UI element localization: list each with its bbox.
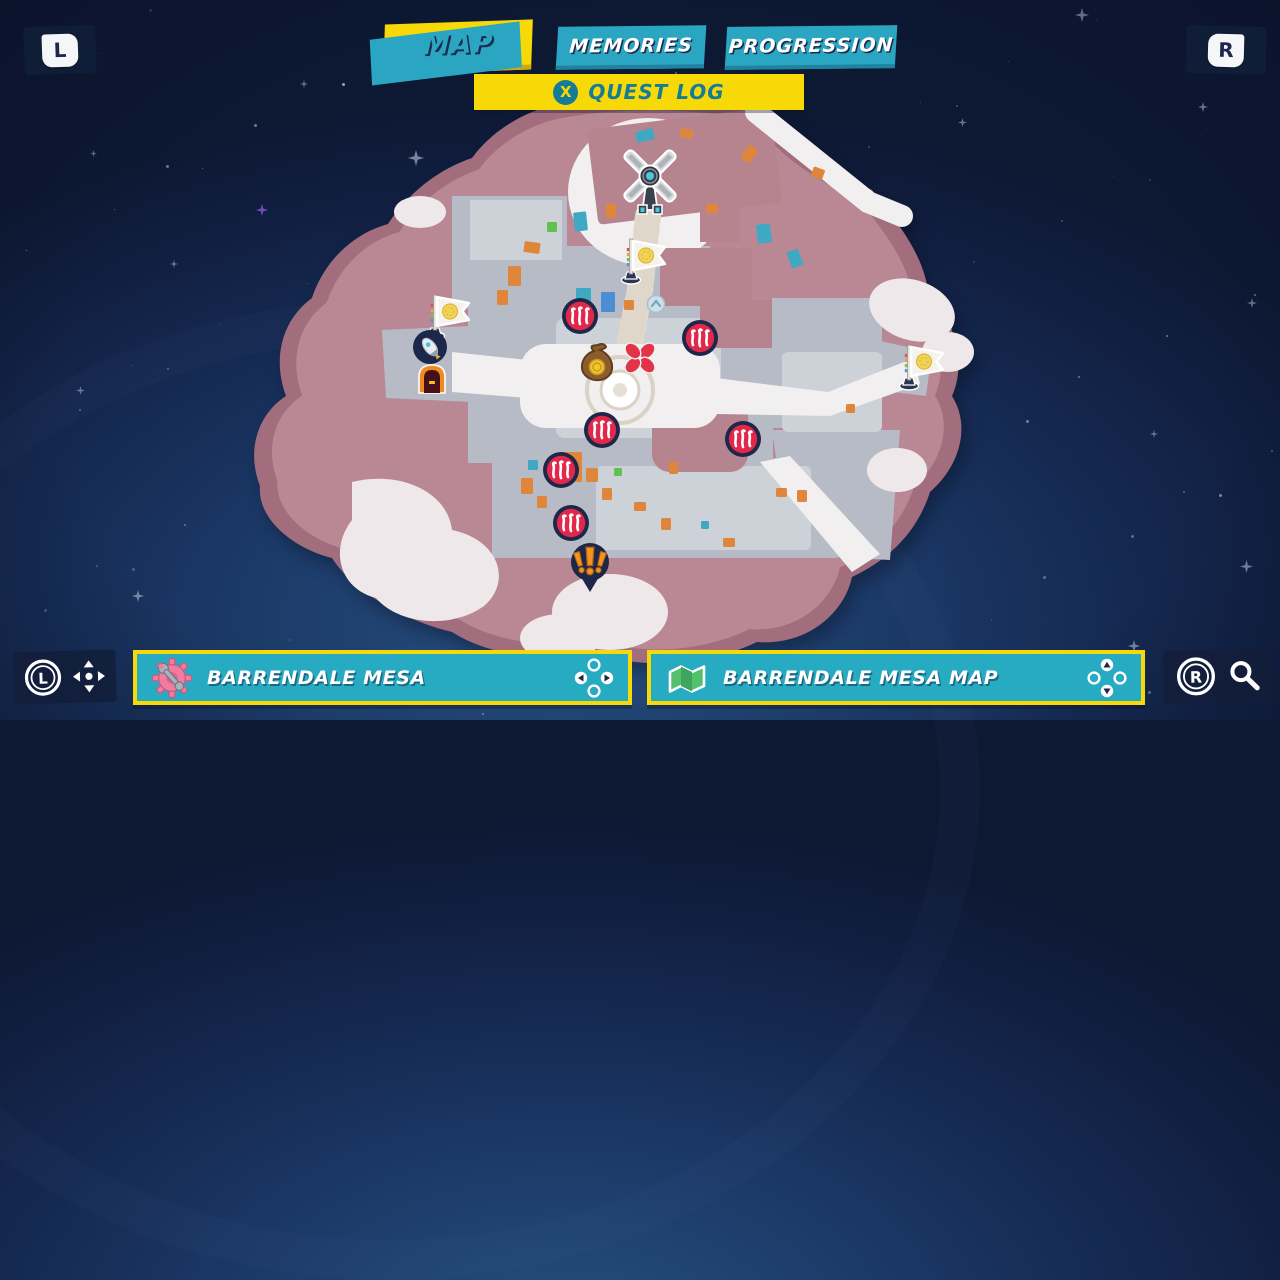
location-bar[interactable]: BARRENDALE MESA: [133, 650, 632, 705]
marker-battle[interactable]: [542, 451, 580, 493]
marker-battle[interactable]: [681, 319, 719, 361]
map-title-bar[interactable]: BARRENDALE MESA MAP: [647, 650, 1145, 705]
location-label: BARRENDALE MESA: [207, 667, 560, 689]
circled-r-icon: R: [1174, 655, 1217, 698]
marker-battle[interactable]: [583, 411, 621, 453]
footer-right-controls: R: [1164, 649, 1273, 703]
magnifier-icon[interactable]: [1227, 658, 1262, 693]
marker-windmill: [612, 142, 688, 232]
circled-l-icon: L: [22, 657, 63, 698]
quest-log-label: QUEST LOG: [588, 80, 724, 104]
left-shoulder-hint: L: [23, 25, 97, 75]
right-shoulder-hint: R: [1185, 25, 1266, 75]
tab-memories[interactable]: MEMORIES: [556, 25, 707, 70]
marker-coin-bag[interactable]: [578, 342, 616, 390]
tab-map[interactable]: MAP: [383, 19, 533, 74]
footer-left-controls: L: [13, 650, 116, 705]
marker-door[interactable]: [415, 361, 449, 399]
marker-battle[interactable]: [724, 420, 762, 462]
marker-checkpoint-flag[interactable]: [893, 340, 951, 396]
marker-quest-target: [620, 338, 660, 382]
gear-wrench-icon: [151, 657, 193, 699]
dpad-left-right-icon[interactable]: [574, 658, 614, 698]
map-icon: [665, 659, 709, 697]
svg-text:L: L: [38, 669, 48, 687]
x-button-icon: X: [553, 80, 578, 105]
marker-battle[interactable]: [561, 297, 599, 339]
r-shoulder-button[interactable]: R: [1208, 33, 1245, 67]
quest-log-button[interactable]: X QUEST LOG: [474, 74, 804, 110]
l-shoulder-button[interactable]: L: [41, 33, 78, 67]
marker-lift: [646, 294, 666, 318]
marker-checkpoint-flag[interactable]: [615, 234, 673, 290]
tab-progression[interactable]: PROGRESSION: [725, 25, 898, 70]
marker-side-quest[interactable]: [566, 540, 614, 600]
dpad-up-down-icon[interactable]: [1087, 658, 1127, 698]
svg-text:R: R: [1189, 668, 1201, 687]
map-title-label: BARRENDALE MESA MAP: [723, 667, 1073, 689]
move-dpad-icon: [71, 658, 108, 695]
